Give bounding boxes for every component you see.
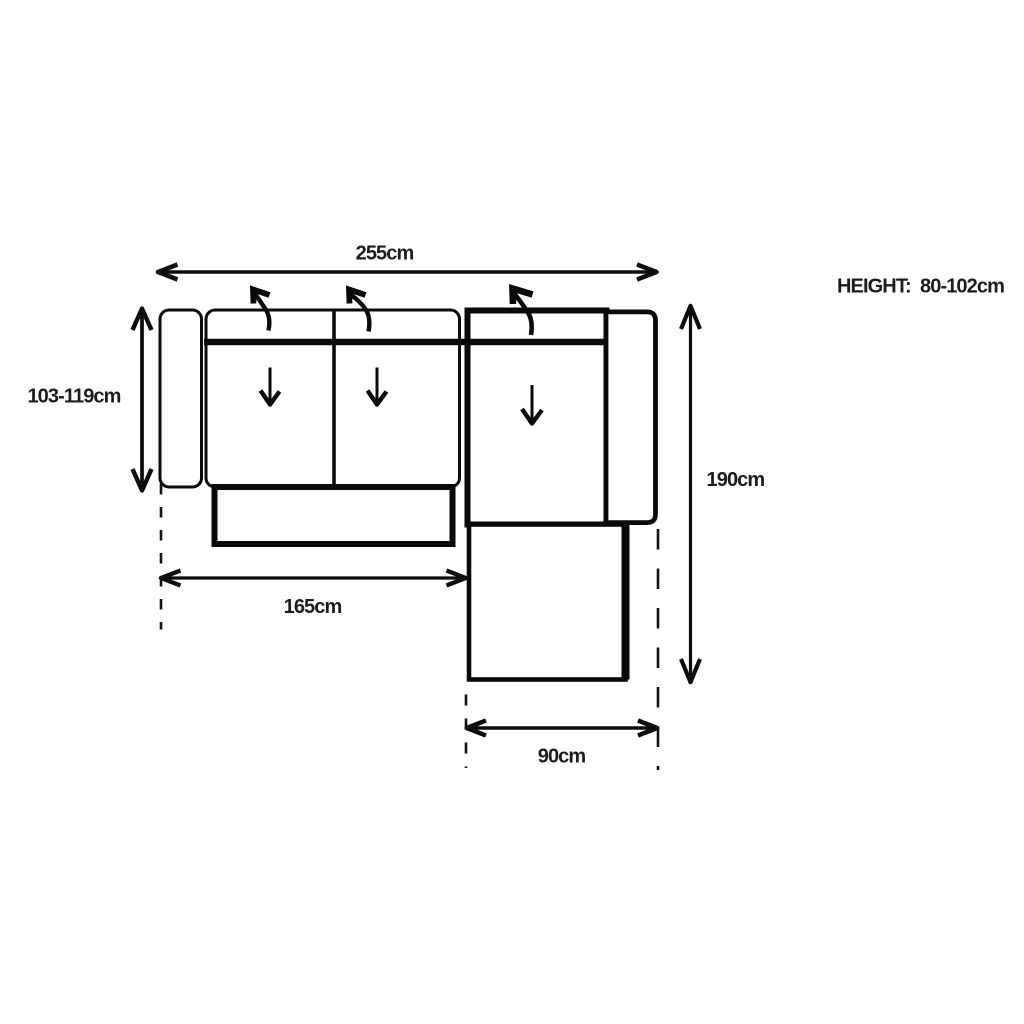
svg-text:165cm: 165cm: [284, 596, 342, 618]
svg-text:190cm: 190cm: [707, 469, 765, 491]
svg-text:80-102cm: 80-102cm: [920, 276, 1004, 298]
svg-text:90cm: 90cm: [538, 746, 586, 768]
svg-text:HEIGHT:: HEIGHT:: [837, 276, 911, 298]
svg-text:255cm: 255cm: [356, 243, 414, 265]
svg-text:103-119cm: 103-119cm: [27, 386, 120, 408]
